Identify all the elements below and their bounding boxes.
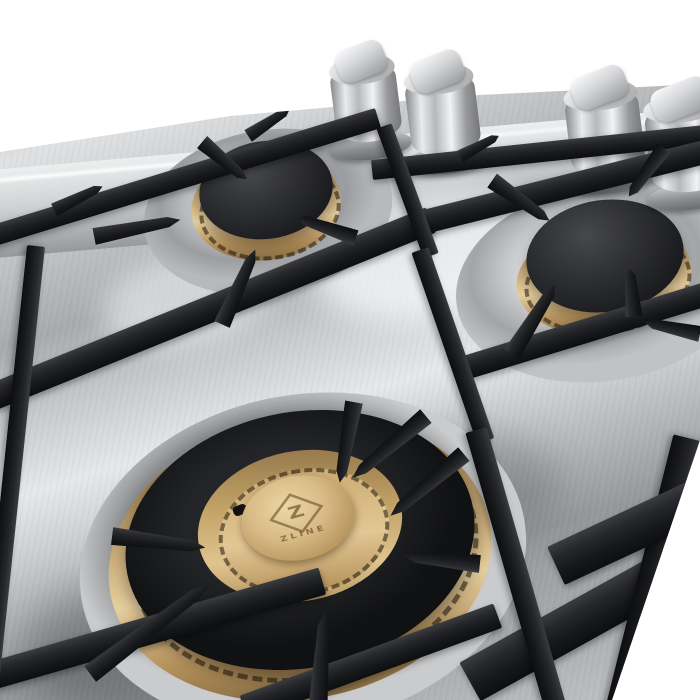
grate-bar xyxy=(240,603,503,700)
grate-bar xyxy=(601,434,700,700)
grate-prong xyxy=(347,409,432,484)
grate-bar xyxy=(0,568,326,692)
grate-bar xyxy=(454,283,700,381)
cooktop-photo: Z ZLINE xyxy=(0,0,700,700)
grate-prong xyxy=(92,211,182,244)
grate-prong xyxy=(295,210,359,245)
grate-prong xyxy=(403,547,480,573)
grate-bar xyxy=(0,245,45,700)
grate-bar xyxy=(0,207,436,413)
grate-prong xyxy=(111,527,206,556)
grate-prong xyxy=(385,447,470,522)
